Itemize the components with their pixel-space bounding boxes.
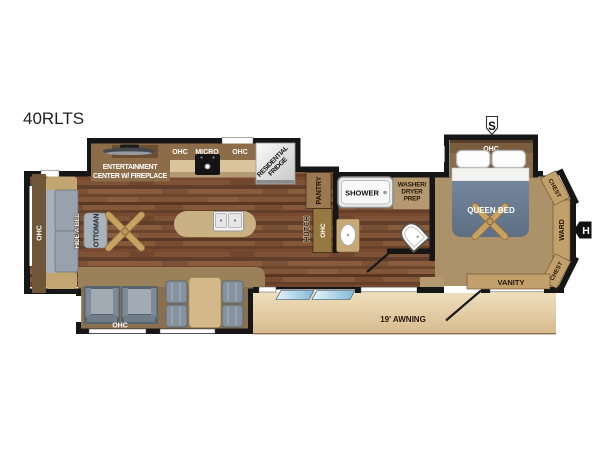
svg-text:WARD: WARD — [559, 219, 566, 240]
svg-text:OHC: OHC — [37, 225, 44, 241]
svg-text:OHC: OHC — [112, 323, 128, 330]
svg-text:OHC: OHC — [172, 149, 188, 156]
svg-text:HIDE-A-BED: HIDE-A-BED — [74, 213, 81, 249]
svg-text:HUTCH: HUTCH — [302, 216, 311, 242]
svg-text:QUEEN BED: QUEEN BED — [467, 206, 515, 215]
svg-text:PANTRY: PANTRY — [316, 176, 323, 204]
svg-text:PREP: PREP — [404, 196, 422, 203]
svg-text:19' AWNING: 19' AWNING — [380, 315, 426, 324]
svg-text:ENTERTAINMENT: ENTERTAINMENT — [103, 164, 159, 171]
svg-text:CENTER W/ FIREPLACE: CENTER W/ FIREPLACE — [93, 173, 168, 180]
svg-text:SHOWER: SHOWER — [345, 189, 379, 198]
svg-text:DRYER: DRYER — [401, 189, 423, 196]
svg-text:OHC: OHC — [320, 223, 327, 238]
svg-text:VANITY: VANITY — [498, 278, 525, 287]
svg-text:H: H — [582, 225, 590, 237]
svg-text:OTTOMAN: OTTOMAN — [94, 214, 101, 247]
svg-text:OHC: OHC — [232, 149, 248, 156]
svg-text:S: S — [488, 121, 496, 133]
svg-text:WASHER/: WASHER/ — [398, 182, 427, 189]
svg-text:40RLTS: 40RLTS — [23, 109, 84, 128]
